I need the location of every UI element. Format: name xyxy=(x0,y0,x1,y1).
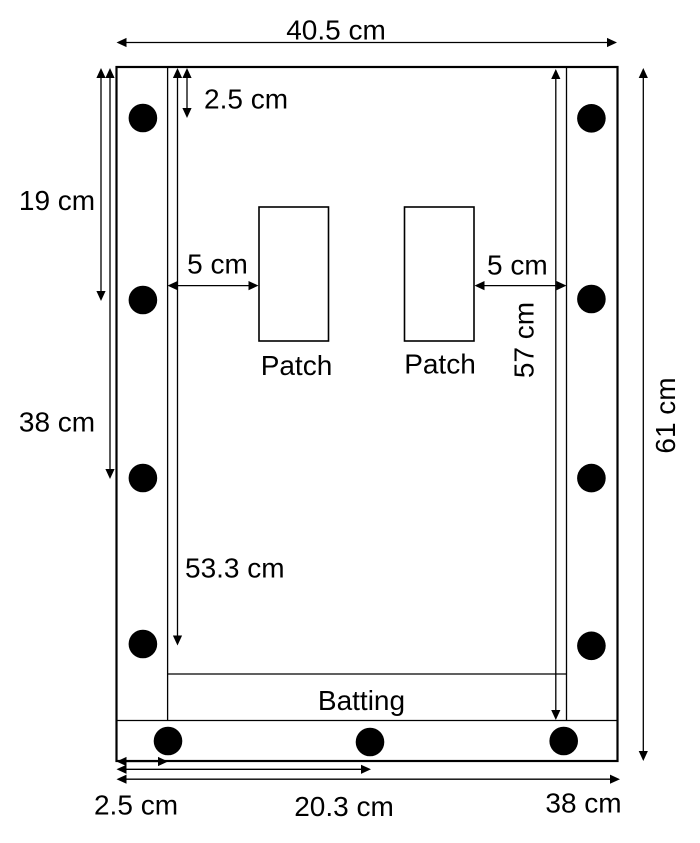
svg-text:2.5 cm: 2.5 cm xyxy=(204,84,288,115)
svg-text:2.5 cm: 2.5 cm xyxy=(94,790,178,821)
svg-text:38 cm: 38 cm xyxy=(545,788,621,819)
svg-text:Patch: Patch xyxy=(404,349,476,380)
svg-text:53.3 cm: 53.3 cm xyxy=(185,553,285,584)
svg-text:20.3 cm: 20.3 cm xyxy=(294,791,394,822)
svg-text:5 cm: 5 cm xyxy=(187,249,248,280)
svg-text:38 cm: 38 cm xyxy=(19,407,95,438)
svg-text:Batting: Batting xyxy=(318,685,405,716)
svg-text:57 cm: 57 cm xyxy=(509,302,540,378)
svg-text:19 cm: 19 cm xyxy=(19,185,95,216)
svg-text:40.5 cm: 40.5 cm xyxy=(286,14,386,45)
svg-text:61 cm: 61 cm xyxy=(650,377,681,453)
svg-text:5 cm: 5 cm xyxy=(487,249,548,280)
svg-text:Patch: Patch xyxy=(261,350,333,381)
